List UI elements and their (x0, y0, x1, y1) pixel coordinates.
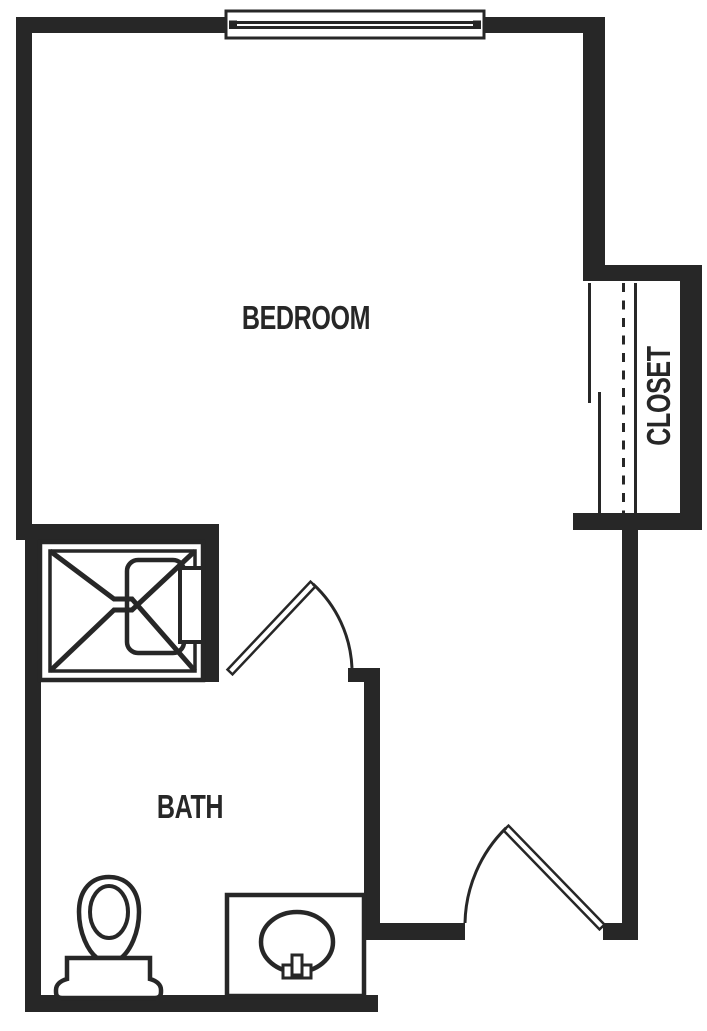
floor-plan-svg (0, 0, 707, 1031)
window-frame (226, 11, 484, 38)
wall-top-left (16, 17, 228, 33)
window-glass-line-top (237, 21, 473, 24)
wall-bath-top (16, 524, 219, 540)
wall-entry-left (378, 923, 465, 940)
shower-door-jamb (180, 568, 203, 642)
walls (16, 17, 702, 1012)
closet-label: CLOSET (640, 346, 678, 445)
sink-vanity (227, 895, 364, 996)
wall-left-bedroom (16, 17, 32, 540)
entry-door (465, 826, 605, 930)
entry-door-leaf (504, 826, 605, 930)
toilet-bowl-inner (90, 886, 128, 938)
wall-below-closet (622, 530, 638, 940)
toilet (56, 877, 161, 998)
bath-door-swing-arc (313, 584, 352, 668)
window-jamb-left (229, 21, 237, 30)
window-glass-line-bottom (237, 26, 473, 29)
window-jamb-right (473, 21, 481, 30)
bath-door (228, 582, 353, 675)
wall-closet-right (680, 265, 702, 530)
wall-right-bedroom (583, 17, 605, 281)
bedroom-label: BEDROOM (242, 299, 370, 337)
closet-fixtures (590, 283, 636, 513)
toilet-tank (56, 958, 161, 998)
entry-door-swing-arc (465, 828, 506, 923)
shower (40, 542, 203, 680)
wall-closet-bottom (573, 513, 702, 530)
floor-plan: BEDROOM BATH CLOSET (0, 0, 707, 1031)
sink-faucet-handle (292, 955, 302, 975)
wall-shower-right (203, 524, 219, 682)
wall-bath-door-stub (348, 668, 378, 682)
window (226, 11, 484, 38)
bath-door-leaf (228, 582, 316, 675)
wall-bath-right (364, 668, 380, 940)
wall-entry-right (603, 923, 638, 940)
bath-label: BATH (157, 788, 223, 826)
